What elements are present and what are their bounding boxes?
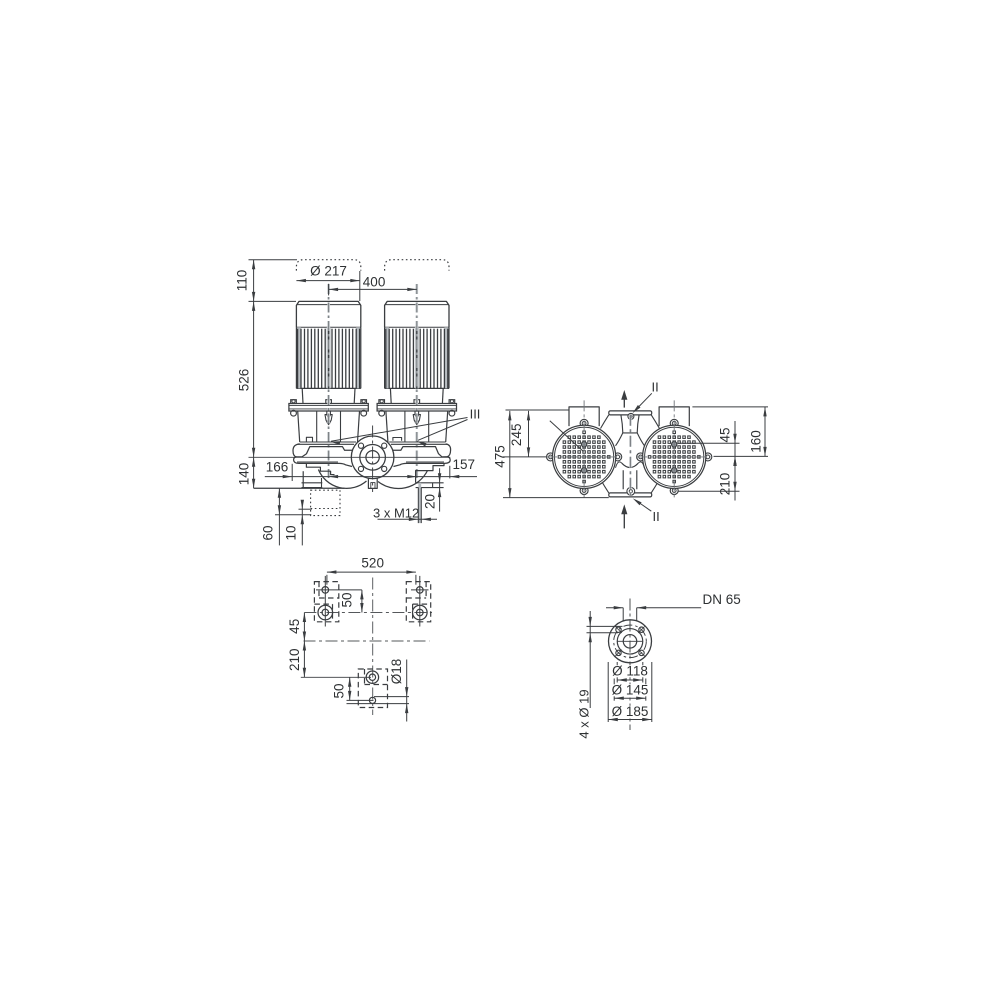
svg-text:110: 110 xyxy=(235,270,250,292)
svg-text:50: 50 xyxy=(331,683,346,698)
svg-text:II: II xyxy=(652,380,659,395)
svg-text:Ø 185: Ø 185 xyxy=(612,704,649,719)
svg-text:160: 160 xyxy=(749,430,764,453)
svg-text:45: 45 xyxy=(718,427,733,442)
svg-text:526: 526 xyxy=(236,369,251,392)
svg-text:50: 50 xyxy=(340,592,355,607)
svg-text:400: 400 xyxy=(363,275,386,290)
svg-text:Ø 217: Ø 217 xyxy=(310,264,347,279)
svg-text:20: 20 xyxy=(422,494,437,509)
svg-text:210: 210 xyxy=(287,648,302,671)
svg-text:45: 45 xyxy=(287,619,302,634)
svg-text:60: 60 xyxy=(261,525,276,540)
svg-text:520: 520 xyxy=(361,556,384,571)
svg-text:210: 210 xyxy=(718,473,733,496)
svg-text:III: III xyxy=(470,407,481,422)
svg-text:II: II xyxy=(653,509,660,524)
svg-text:10: 10 xyxy=(284,525,299,540)
svg-text:157: 157 xyxy=(453,457,476,472)
svg-text:245: 245 xyxy=(509,424,524,447)
svg-text:Ø 118: Ø 118 xyxy=(612,663,648,678)
svg-text:Ø18: Ø18 xyxy=(389,659,404,685)
svg-text:166: 166 xyxy=(266,460,289,475)
svg-text:Ø 145: Ø 145 xyxy=(612,682,649,697)
svg-text:140: 140 xyxy=(236,463,251,486)
svg-text:DN 65: DN 65 xyxy=(703,592,741,607)
svg-text:4 x Ø 19: 4 x Ø 19 xyxy=(577,689,592,738)
